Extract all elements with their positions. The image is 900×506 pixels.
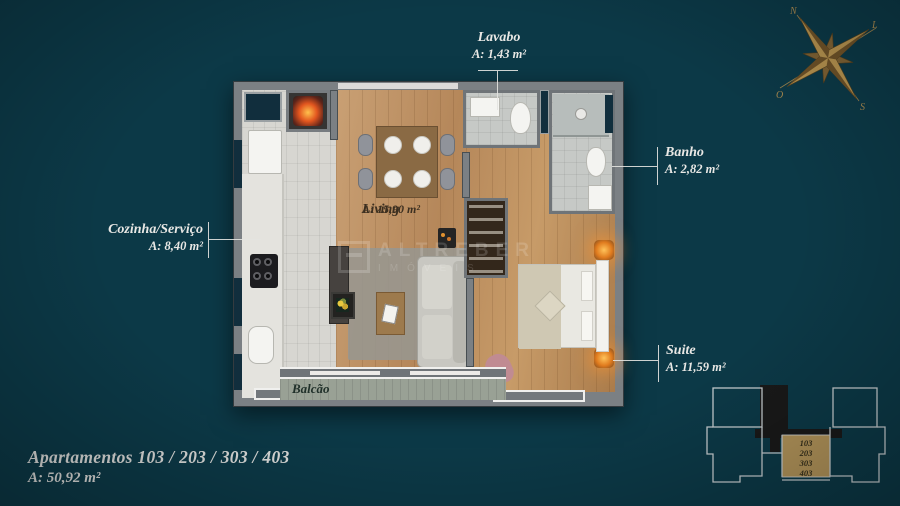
balcony-floor: Balcão [280, 379, 506, 400]
dining-chair [358, 168, 373, 190]
burner-icon [264, 272, 272, 280]
fireplace-grill [286, 90, 330, 132]
bed [518, 264, 596, 348]
dining-chair [440, 134, 455, 156]
sofa-cushion [422, 315, 452, 359]
banho-window [605, 95, 613, 133]
cozinha-name: Cozinha/Serviço [56, 221, 203, 239]
left-wall-window [234, 140, 242, 188]
banho-callout: Banho A: 2,82 m² [665, 144, 719, 177]
banho-room [549, 90, 615, 214]
suite-area: A: 11,59 m² [666, 360, 726, 376]
magazine [381, 304, 398, 325]
cozinha-callout: Cozinha/Serviço A: 8,40 m² [56, 221, 203, 254]
dining-chair [358, 134, 373, 156]
candle-icon [441, 233, 445, 237]
banho-toilet [586, 147, 606, 177]
floor-plan-page: Living A: 15,90 m² [0, 0, 900, 506]
dining-chair [440, 168, 455, 190]
leader-line-cozinha [208, 222, 209, 258]
watermark-line1: ALTREBER [378, 240, 536, 262]
burner-icon [253, 258, 261, 266]
watermark: ALTREBER IMÓVEIS [338, 240, 536, 274]
apartments-total-area: A: 50,92 m² [28, 470, 290, 487]
window-glass [410, 371, 480, 375]
pillow [581, 271, 593, 301]
dining-table [376, 126, 438, 198]
window-glass [310, 371, 380, 375]
lavabo-name: Lavabo [443, 29, 555, 47]
watermark-line2: IMÓVEIS [378, 263, 536, 274]
cooktop [250, 254, 278, 288]
keyplan: 103 203 303 403 [702, 383, 898, 501]
keyplan-unit-403: 403 [799, 468, 814, 478]
compass-east-label: L [871, 20, 878, 31]
leader-line-banho [612, 166, 657, 167]
keyplan-unit-103: 103 [800, 438, 814, 448]
footer: Apartamentos 103 / 203 / 303 / 403 A: 50… [28, 447, 290, 487]
left-wall-window [234, 278, 242, 326]
leader-line-banho [657, 147, 658, 185]
compass-south-label: S [860, 102, 865, 113]
lavabo-area: A: 1,43 m² [443, 47, 555, 63]
balcony-door-window [280, 367, 506, 379]
wall-segment [330, 90, 338, 140]
fire-icon [293, 96, 323, 126]
leader-line-lavabo [478, 70, 518, 71]
leader-line-suite [658, 345, 659, 382]
plate-icon [413, 170, 431, 188]
banho-area: A: 2,82 m² [665, 162, 719, 178]
banho-name: Banho [665, 144, 719, 162]
suite-name: Suite [666, 342, 726, 360]
living-room-area: A: 15,90 m² [362, 202, 420, 216]
keyplan-unit-303: 303 [799, 458, 814, 468]
balcony-label: Balcão [292, 381, 330, 397]
plate-icon [384, 170, 402, 188]
burner-icon [264, 258, 272, 266]
lavabo-washbasin [470, 97, 500, 117]
fridge [248, 130, 282, 174]
bed-headboard [596, 260, 609, 352]
cozinha-area: A: 8,40 m² [56, 239, 203, 255]
shower-drain-icon [575, 108, 587, 120]
plate-icon [384, 136, 402, 154]
pillow [581, 311, 593, 341]
wall-segment [462, 152, 470, 198]
left-wall-window [234, 354, 242, 390]
compass-west-label: O [776, 90, 783, 101]
watermark-logo-icon [338, 241, 370, 273]
lavabo-callout: Lavabo A: 1,43 m² [443, 29, 555, 62]
suite-window [493, 390, 585, 402]
plate-icon [413, 136, 431, 154]
kitchen-sink [248, 326, 274, 364]
flower-art [331, 292, 355, 319]
bathroom-window [540, 90, 549, 134]
flowers-icon [336, 298, 349, 312]
lavabo-toilet [510, 102, 531, 134]
banho-washbasin [588, 185, 612, 210]
suite-callout: Suite A: 11,59 m² [666, 342, 726, 375]
lavabo-room [463, 90, 540, 148]
shower [553, 94, 609, 137]
living-top-window [338, 83, 458, 89]
burner-icon [253, 272, 261, 280]
compass-north-label: N [789, 6, 798, 17]
compass-rose-icon: N L S O [760, 0, 896, 120]
apartments-title: Apartamentos 103 / 203 / 303 / 403 [28, 447, 290, 468]
nightstand-lamp [594, 240, 614, 260]
kitchen-window [244, 92, 282, 122]
coffee-table [376, 292, 405, 335]
keyplan-unit-203: 203 [799, 448, 814, 458]
leader-line-lavabo [497, 71, 498, 110]
leader-line-suite [613, 360, 658, 361]
wall-segment [466, 278, 474, 367]
leader-line-cozinha [209, 239, 261, 240]
